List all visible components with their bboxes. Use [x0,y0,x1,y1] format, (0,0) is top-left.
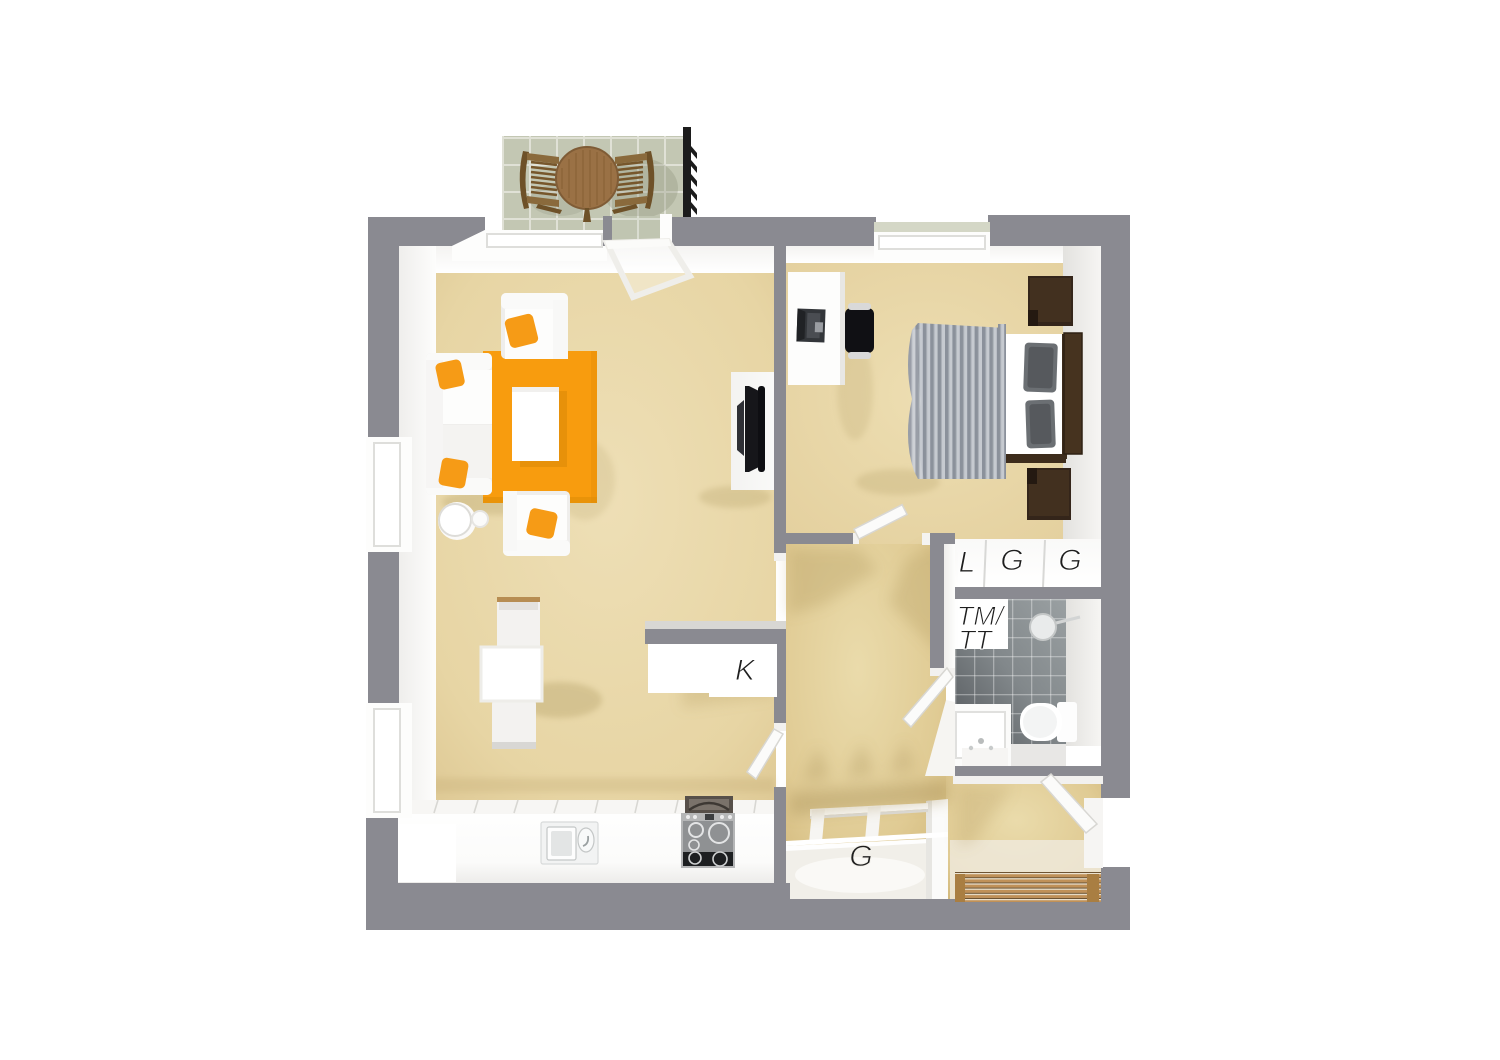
svg-text:G: G [849,840,872,873]
svg-text:G: G [1000,544,1023,577]
svg-text:L: L [959,546,976,579]
svg-text:TT: TT [959,625,994,655]
svg-text:G: G [1058,544,1081,577]
svg-text:K: K [735,654,757,687]
